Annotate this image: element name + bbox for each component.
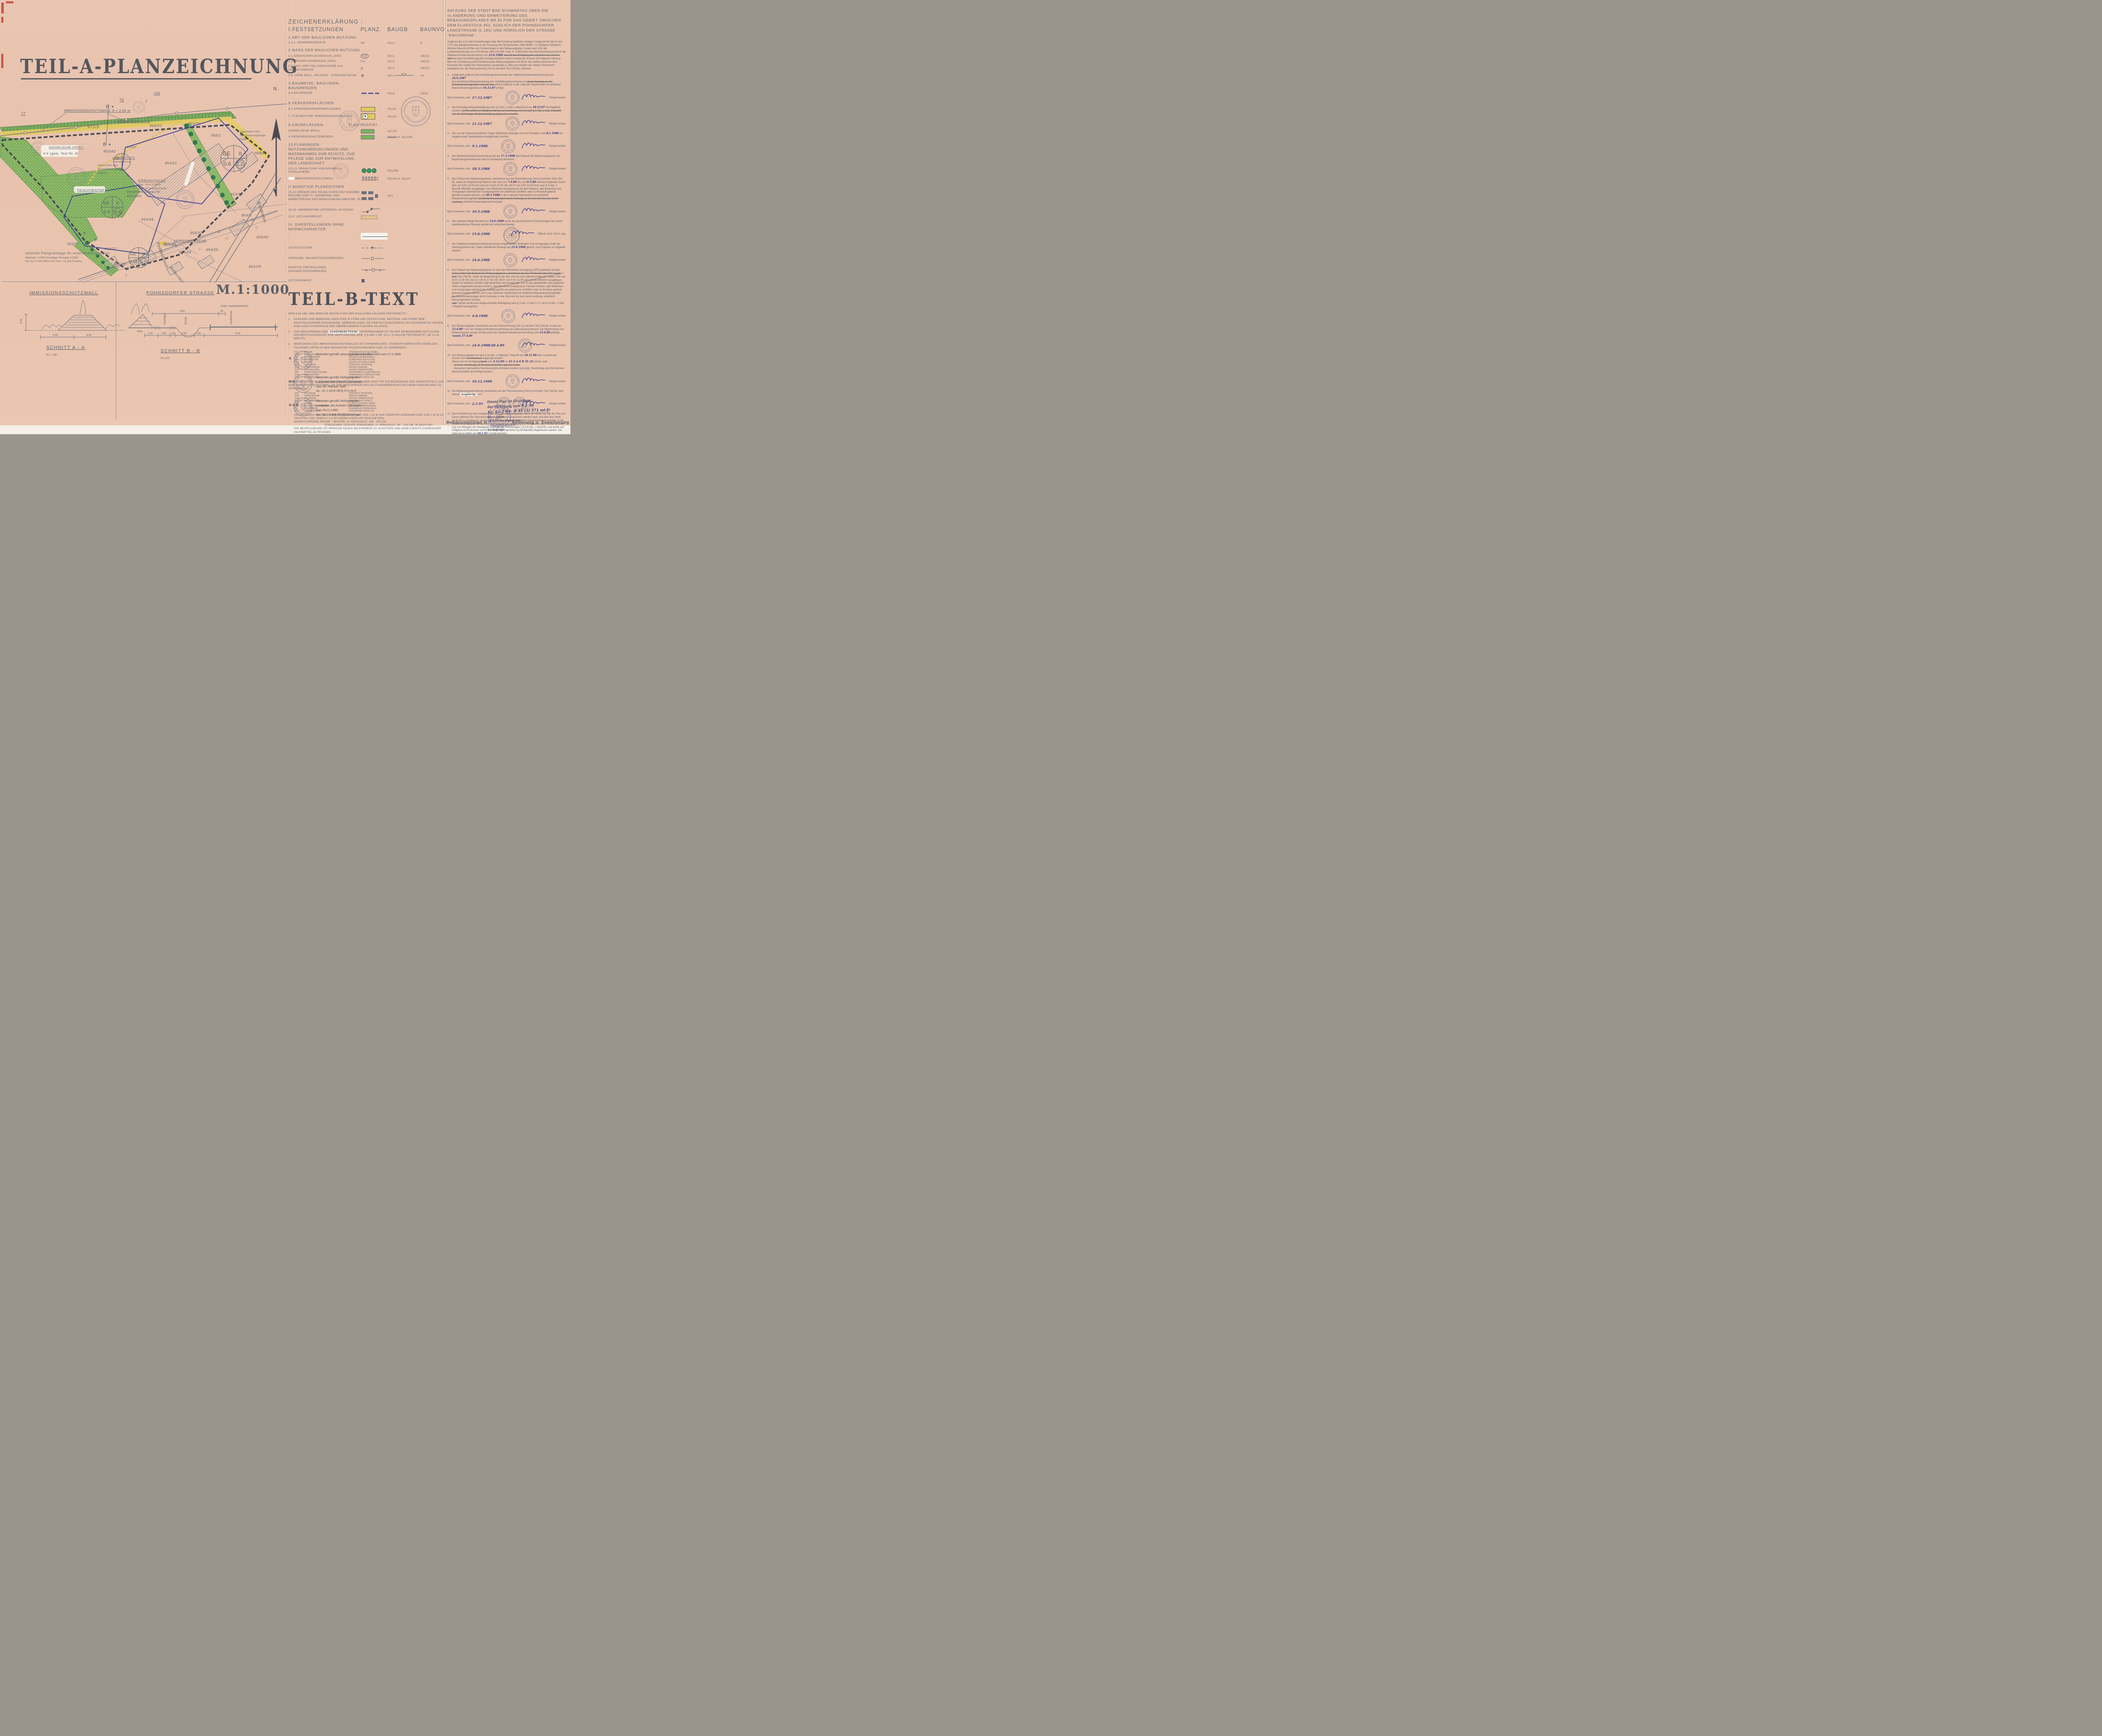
legend-symbol (361, 129, 388, 134)
handwritten-date: 9.2.90 (521, 404, 534, 409)
city-stamp: STADT BAD SCHWARTAU KREIS OSTHOLSTEIN (505, 90, 520, 107)
signer-title: Bürgermeister (549, 344, 566, 347)
satzung-title: SATZUNG DER STADT BAD SCHWARTAU ÜBER DIE… (447, 8, 566, 38)
star-marker: ✳ (288, 356, 292, 361)
legend-label: 13.2.2. ERHALTUNG VON BÄUMEN U. STRÄUCHE… (288, 167, 361, 174)
svg-text:0,8: 0,8 (115, 210, 121, 214)
legend-section-heading: II SONSTIGE PLANZEICHEN (288, 185, 445, 189)
item-text: GARAGEN UND NEBENANL AGEN SIND IN FORM U… (294, 318, 445, 328)
dim-label: .50 (220, 310, 224, 313)
map-label: VERKEHRSFLÄCHE (174, 239, 206, 243)
signer-title: Bürgermeister (549, 96, 566, 99)
legend-row: 13.2.2. ERHALTUNG VON BÄUMEN U. STRÄUCHE… (288, 167, 445, 174)
amendment-note: ✳✳ STADT BAD SCHWARTAU KREIS OSTHOLSTEIN… (288, 375, 444, 393)
red-edge-mark (1, 54, 3, 68)
red-edge-mark (6, 1, 13, 3)
svg-text:⨯: ⨯ (365, 268, 368, 272)
map-label: 954/3 (241, 213, 251, 217)
legend-rows: 1.ART DER BAULICHEN NUTZUNG1.3.1. GEWERB… (288, 35, 445, 283)
dim-label: WALL (137, 330, 143, 333)
legend-baugb-ref: 9(1)1 (388, 42, 420, 45)
legend-baugb-ref: 9(1)1 (388, 55, 420, 58)
svg-text:STADT BAD SCHWARTAU: STADT BAD SCHWARTAU (293, 397, 312, 409)
satzung-item-4: 4.Die Stadtverordnetenversammlung hat am… (447, 155, 566, 161)
map-label: 953/44 (141, 217, 153, 222)
plant-note-4: DIE NEUPFLANZUNG IST WIRKSAM GEGEN WILDV… (294, 427, 445, 434)
map-label: GRÜNFLÄCHE (PRIV.) (49, 146, 83, 149)
handwritten-date: 10.12.1990 (472, 380, 492, 383)
city-stamp: STADT BAD SCHWARTAU KREIS OSTHOLSTEIN (400, 96, 431, 129)
svg-text:0,4: 0,4 (103, 209, 110, 214)
legend-label: 15.5. LEITUNGSRECHT (288, 215, 361, 219)
red-edge-mark (1, 17, 3, 23)
svg-text:1.00: 1.00 (170, 332, 175, 335)
map-label: 952/7 (67, 242, 77, 246)
city-stamp: STADT BAD SCHWARTAU KREIS OSTHOLSTEIN (333, 163, 349, 181)
amendment-text: Geändert gemäß Verfügung desLandrates de… (316, 399, 444, 417)
legend-label: 6.VERKEHRSFLÄCHEN (288, 101, 361, 106)
legend-row: GRÜNFLÄCHE (PRIV.)9(1)15 (288, 129, 445, 134)
svg-text:1,1: 1,1 (141, 260, 146, 264)
map-label: LAGERPLATZ (113, 156, 135, 160)
legend-row: 15.5. LEITUNGSRECHT (288, 215, 445, 219)
svg-text:⨯: ⨯ (378, 268, 382, 272)
svg-text:GE: GE (130, 252, 137, 256)
signature-block: Bad Schwartau, den17.12.1987 STADT BAD S… (447, 92, 566, 103)
signer-title: Bürgermeister (549, 210, 566, 213)
city-stamp: STADT BAD SCHWARTAU KREIS OSTHOLSTEIN (503, 204, 518, 221)
svg-text:II: II (116, 201, 119, 206)
legend-label: 2.1.GESCHOSSFLÄCHENZAHL (GFZ) (288, 55, 361, 58)
svg-text:STADT BAD SCHWARTAU: STADT BAD SCHWARTAU (505, 374, 519, 383)
svg-text:0,6: 0,6 (223, 161, 231, 167)
map-label: B (106, 104, 109, 109)
map-label: 954/32 (190, 231, 202, 235)
city-stamp: STADT BAD SCHWARTAU KREIS OSTHOLSTEIN (503, 162, 518, 178)
ge-area-symbol: GEII0,40,8 (101, 196, 123, 218)
map-label: Stromversorgungs- (240, 134, 267, 137)
svg-text:II: II (143, 252, 145, 256)
dim-label: 2.00 (20, 319, 23, 324)
legend-subheading: I.FESTSETZUNGEN (288, 26, 361, 32)
city-stamp: STADT BAD SCHWARTAU KREIS OSTHOLSTEIN (501, 139, 515, 156)
map-label: trägers (98, 171, 108, 174)
map-label: BECKEN (127, 194, 141, 198)
signature-block: Bad Schwartau, den10.5.1988 STADT BAD SC… (447, 206, 566, 217)
signature (521, 206, 546, 217)
legend-symbol (361, 107, 388, 112)
legend-symbol (361, 245, 388, 251)
svg-text:STADT BAD SCHWARTAU: STADT BAD SCHWARTAU (339, 110, 359, 122)
map-label: VERKEHRSFLÄCHE (118, 119, 151, 123)
legend-row: 2.5.GRUNDFLÄCHENZAHL (GRZ)0,49(1)116(2)2 (288, 60, 445, 63)
plan-basis-line: Maßstab 1:1000 Grundlage Flurkarte 1:200… (25, 256, 110, 259)
signer-title: Bürgermeister (549, 380, 566, 383)
legend-symbol: GE (361, 42, 388, 45)
item-number: 1. (288, 318, 294, 328)
map-label: KNICK (126, 146, 136, 149)
legend-symbol (361, 207, 388, 214)
map-label: N (273, 86, 277, 92)
item-text: BEGRÜNUNG DES IMMISSIONSSCHUTZWALLES MIT… (294, 343, 445, 349)
legend-row: IMMISSIONSSCHUTZWALL9(1)24 m. 9(1)17 (288, 176, 445, 182)
map-label: über Strassenniveau (138, 187, 167, 190)
legend-baugb-ref: 9(1)16 m. 9(1)25b (388, 136, 420, 139)
legend-symbol (361, 256, 388, 261)
legend-label: 2.MASS DER BAULICHEN NUTZUNG (288, 48, 361, 53)
map-label: ✳✳ (gem. Text Nr. 4) (43, 152, 79, 156)
svg-text:STADT BAD SCHWARTAU: STADT BAD SCHWARTAU (400, 96, 429, 114)
red-edge-mark (1, 3, 4, 13)
map-label: zugunsten des (98, 164, 118, 167)
map-label: B (103, 142, 106, 147)
svg-text:2.00: 2.00 (161, 332, 166, 335)
svg-text:3.00: 3.00 (182, 332, 187, 335)
legend-baunvo-ref: 16(2)2 (420, 60, 445, 63)
signature-block: Bad Schwartau, den4.8.1988 STADT BAD SCH… (447, 311, 566, 322)
map-label: 955/1 (211, 133, 221, 137)
legend-label: 15.13. ABGRENZUNG UNTERSCH. NUTZUNG (288, 208, 361, 212)
dim-label: RADWEG (164, 313, 166, 325)
map-label: 954/21 (165, 161, 177, 165)
legend-label: 110 KV-LEITUNG (288, 246, 361, 250)
legend-section-heading: III. DARSTELLUNGEN OHNE NORMCHARAKTER (288, 222, 445, 232)
map-label: FEUCHTBIOTOP (77, 188, 105, 192)
schnitt-a-scale: M.1 : 100 (46, 354, 57, 356)
map-label: Stromversorgungs- (98, 168, 124, 171)
legend-baugb-ref: 9(1)1 (388, 60, 420, 63)
legend-section-heading: 3.BAUWEISE, BAULINIEN, BAUGRENZEN (288, 81, 445, 90)
satzung-items: 1.Aufgestellt aufgrund des Aufstellungsb… (447, 74, 566, 434)
legend-label: VORHAND. GRUNDSTÜCKSGRENZEN (288, 257, 361, 261)
amendment-text: Geändert gemäß satzungsändernden Beschlu… (316, 352, 444, 357)
svg-text:1.50: 1.50 (196, 332, 201, 335)
part-b-item-2: 2. ZUR ABSCHIRMUNG DER GEWERBEBETRIEBE U… (288, 330, 445, 340)
satzung-item-10: 10.Der Bebauungsplan ist nach § 11 Abs. … (447, 354, 566, 374)
satzung-column: SATZUNG DER STADT BAD SCHWARTAU ÜBER DIE… (447, 8, 566, 434)
legend-label: 13.PLANUNGEN, NUTZUNGSREGELUNGEN UND MAS… (288, 142, 361, 166)
legend-baugb-ref: 9(1)25b (388, 169, 420, 172)
legend-row: 2.1.GESCHOSSFLÄCHENZAHL (GFZ)0,89(1)116(… (288, 54, 445, 58)
svg-text:STADT BAD SCHWARTAU: STADT BAD SCHWARTAU (503, 162, 517, 170)
legend-baunvo-ref: 23(3) (420, 92, 445, 95)
legend-row: 1.3.1. GEWERBEGEBIETEGE9(1)18 (288, 41, 445, 45)
map-label: 953/26 (114, 262, 126, 266)
legend-symbol (361, 92, 388, 95)
legend-label: 1.ART DER BAULICHEN NUTZUNG (288, 35, 361, 40)
section-heading-left: IMMISSIONSSCHUTZWALL (29, 290, 98, 295)
map-label: 953/27 (104, 247, 116, 251)
dim-label: 6.00 (87, 334, 92, 337)
part-a-title: TEIL-A-PLANZEICHNUNG (20, 55, 298, 78)
legend-row: 3.4.BAUGRENZE9(1)223(3) (288, 92, 445, 95)
signature (521, 164, 546, 175)
map-label: 956/42 (256, 235, 269, 239)
map-label: 226 (153, 92, 160, 95)
dim-label: 4.00 (53, 334, 58, 337)
plan-basis-line: Dipl. Ing. W. Holst Öffentl. best. Verm.… (25, 260, 110, 263)
schnitt-b-scale: M 1:100 (161, 357, 170, 360)
satzung-item-9: 9.Der Bebauungsplan, bestehend aus der P… (447, 325, 566, 338)
legend-symbol (361, 190, 388, 201)
part-b-item-3: 3. BEGRÜNUNG DES IMMISSIONSSCHUTZWALLES … (288, 343, 445, 349)
map-label: 954/34 (188, 121, 201, 126)
amendment-text: Geändert gemäß Verfügung desLandrates de… (316, 375, 444, 393)
map-label: 76 (119, 98, 124, 102)
map-label: 953/30 (163, 242, 175, 246)
signature-block: Bad Schwartau, den10.12.1990 STADT BAD S… (447, 376, 566, 387)
signature (521, 92, 546, 103)
signature (521, 340, 546, 351)
handwritten-date: 10.5.1988 (472, 210, 490, 214)
svg-text:STADT BAD SCHWARTAU: STADT BAD SCHWARTAU (488, 404, 510, 418)
map-label: zugunsten des (240, 130, 260, 133)
signature (521, 141, 546, 152)
legend-row: 110 KV-LEITUNG (288, 245, 445, 251)
satzung-intro: Aufgrund des § 10 (bei Festsetzungen übe… (447, 40, 566, 70)
svg-text:STADT BAD SCHWARTAU: STADT BAD SCHWARTAU (501, 139, 515, 148)
map-label: Knickrehm (256, 201, 267, 224)
handwritten-date: 24.6.1988/28.4.89 (472, 343, 504, 347)
legend-row: 2.8. HÖHE BAUL. ANLAGEN : STREUGUTSILOS⊗… (288, 74, 445, 78)
legend-symbol: ⊗ (361, 74, 388, 78)
plan-basis-line: amtliche Plangrundlage für einen Bebauun… (25, 251, 110, 255)
legend-label: 3.BAUWEISE, BAULINIEN, BAUGRENZEN (288, 81, 361, 90)
legend-symbol: 0,4 (361, 60, 388, 63)
col-baunvo: BAUNVO (420, 26, 445, 32)
legend-label: 1.3.1. GEWERBEGEBIETE (288, 41, 361, 45)
map-label: REGENRÜCKHALTE- (127, 190, 161, 194)
schnitt-b-label: SCHNITT B - B (161, 348, 200, 354)
signer-title: Bürgermeister (549, 167, 566, 170)
svg-text:0,55: 0,55 (129, 260, 138, 264)
legend-baugb-ref: 9(1)24 m. 9(1)17 (388, 177, 420, 180)
city-stamp: STADT BAD SCHWARTAU KREIS OSTHOLSTEIN (293, 397, 313, 419)
city-stamp: STADT BAD SCHWARTAU KREIS OSTHOLSTEIN (501, 309, 515, 325)
legend-label: KÜNFTIG FORTFALLENDE GRUNDSTÜCKSGRENZEN (288, 266, 361, 273)
legend-label: III. DARSTELLUNGEN OHNE NORMCHARAKTER (288, 222, 361, 232)
signer-title: Bürgermeister (549, 259, 566, 261)
signature-block: Bad Schwartau, den24.6.1988/28.4.89 STAD… (447, 340, 566, 351)
signature (521, 118, 546, 129)
legend-symbol (361, 135, 388, 140)
legend-symbol: II (361, 66, 388, 71)
legend-row: LEITUNGSMAST (288, 279, 445, 283)
legend-row: 15.13. ABGRENZUNG UNTERSCH. NUTZUNG (288, 207, 445, 214)
item-number: 3. (288, 343, 294, 349)
city-stamp: STADT BAD SCHWARTAU KREIS OSTHOLSTEIN (293, 351, 313, 372)
legend-symbol (361, 215, 388, 219)
legend-symbol: 0,8 (361, 54, 388, 58)
city-stamp: STADT BAD SCHWARTAU KREIS OSTHOLSTEIN (505, 116, 520, 133)
legend-row: KÜNFTIG FORTFALLENDE GRUNDSTÜCKSGRENZEN⨯… (288, 266, 445, 273)
item-text: ZUR ABSCHIRMUNG DER GEWERBEBETRIEBE UNTE… (294, 330, 445, 340)
signer-title: Bürgermeister (549, 122, 566, 125)
bottom-title-band: Bebauungsplan N Änderung u. Erweiterung (446, 420, 569, 425)
legend-baunvo-ref: 14 (420, 74, 445, 77)
signature (521, 255, 546, 266)
signature-block: Bad Schwartau, den15.6.1988 Öffentl. bes… (447, 229, 566, 240)
legend-symbol (361, 176, 388, 182)
city-stamp: STADT BAD SCHWARTAU KREIS OSTHOLSTEIN (503, 253, 518, 269)
signature-block: Bad Schwartau, den24.6.1988 STADT BAD SC… (447, 255, 566, 266)
legend-label: II SONSTIGE PLANZEICHEN (288, 185, 361, 189)
map-label: 971/3 (87, 125, 99, 129)
map-label: ◄ (108, 142, 111, 146)
ge-area-symbol: GEII0,61,2 (221, 145, 247, 171)
map-label: 77 (21, 111, 26, 116)
satzung-item-11: 11.Die Bebauungsplansatzung, bestehend a… (447, 390, 566, 396)
svg-text:STADT BAD SCHWARTAU: STADT BAD SCHWARTAU (503, 204, 517, 213)
legend-section-heading: 2.MASS DER BAULICHEN NUTZUNG (288, 48, 445, 53)
legend-label: 3.4.BAUGRENZE (288, 92, 361, 95)
legend-row: 15.12.GRENZE DES RÄUMLICHEN GELTUNGSBE-R… (288, 190, 445, 201)
map-label: 851/29 (249, 264, 261, 269)
legend-symbol: ✳✳ (361, 233, 388, 240)
svg-text:STADT BAD SCHWARTAU: STADT BAD SCHWARTAU (505, 116, 519, 125)
dim-label: 9.50 (180, 310, 185, 313)
handwritten-date: 2.1.91 (472, 402, 483, 406)
city-stamp: STADT BAD SCHWARTAU KREIS OSTHOLSTEIN (505, 374, 520, 390)
svg-text:GE: GE (223, 150, 231, 156)
legend-label: 2.8. HÖHE BAUL. ANLAGEN : STREUGUTSILOS (288, 74, 361, 78)
svg-text:STADT BAD SCHWARTAU: STADT BAD SCHWARTAU (132, 101, 145, 108)
dim-label: FAHRBAHN (230, 311, 233, 325)
handwritten-date: 15.6.1988 (472, 232, 490, 236)
svg-text:6.00: 6.00 (235, 332, 240, 335)
svg-text:STADT BAD SCHWARTAU: STADT BAD SCHWARTAU (293, 351, 312, 362)
ge-area-symbol: GEII0,551,1 (129, 248, 149, 268)
map-label: 956/41 (255, 151, 267, 155)
handwritten-date: 17.12.1987 (472, 96, 492, 100)
signature (521, 311, 546, 322)
legend-baugb-ref: 9(1)2 (388, 92, 420, 95)
section-drawings: IMMISSIONSSCHUTZWALL POHNSDORFER STRASSE… (0, 281, 287, 426)
col-planz: PLANZ. (361, 26, 388, 32)
signature-block: Bad Schwartau, den11.12.1987 STADT BAD S… (447, 118, 566, 129)
legend-baunvo-ref: 16(2)3 (420, 67, 445, 70)
map-label: 954/33 (150, 124, 162, 128)
legend-label: 15.12.GRENZE DES RÄUMLICHEN GELTUNGSBE-R… (288, 191, 361, 202)
legend-baugb-ref: 9(1)15 (388, 130, 420, 133)
legend-label: 2.7.ZAHL DER VOLLGESCHOSSE ALS HÖCHSTGRE… (288, 65, 361, 72)
satzung-item-8: 8.Der Entwurf des Bebauungsplanes ist na… (447, 269, 566, 309)
svg-text:STADT BAD SCHWARTAU: STADT BAD SCHWARTAU (175, 190, 194, 201)
city-stamp: STADT BAD SCHWARTAU KREIS OSTHOLSTEIN (293, 374, 313, 395)
legend-row: ✳✳ (288, 233, 445, 240)
amendment-note: ✳ STADT BAD SCHWARTAU KREIS OSTHOLSTEIN … (288, 352, 444, 370)
dim-label: (VORH. FAHRBAHNKANTE) (220, 305, 248, 308)
plant-note-3: STRÄUCHER: LEICHTE STRÄUCHER, 1× VERSCHU… (325, 424, 445, 427)
legend-symbol (361, 113, 388, 120)
plan-basis-note: amtliche Plangrundlage für einen Bebauun… (25, 251, 110, 263)
legend-row: VORHAND. GRUNDSTÜCKSGRENZEN (288, 256, 445, 261)
legend-label: 2.5.GRUNDFLÄCHENZAHL (GRZ) (288, 60, 361, 63)
map-label: trägers (240, 138, 250, 141)
svg-text:STADT BAD SCHWARTAU: STADT BAD SCHWARTAU (505, 90, 519, 99)
part-b-intro: GEM § 82 LBO 1983 WIRD DIE GESTALTUNG DE… (288, 312, 445, 316)
map-label: 953/43 (103, 149, 116, 153)
handwritten-date: 9.1.1988 (472, 144, 488, 148)
scanned-plan-sheet: TEIL-A-PLANZEICHNUNG M.1:1000 (0, 0, 570, 434)
satzung-item-7: 7.Die Stadtverordnetenversammlung hat di… (447, 243, 566, 253)
handwritten-date: 24.6.1988 (472, 258, 490, 262)
map-label: 953/34 (230, 192, 243, 196)
legend-heading: ZEICHENERKLÄRUNG : (288, 18, 445, 25)
satzung-item-2: 2.Die frühzeitige Bürgerbeteiligung nach… (447, 106, 566, 116)
map-label: 954/25 (206, 248, 218, 252)
handwritten-date: 11.12.1987 (472, 122, 492, 126)
signer-title: Bürgermeister (549, 145, 566, 148)
handwritten-date: 18.3.1988 (472, 167, 490, 171)
satzung-item-6: 6.Der katastermäßige Bestand am 14.6.198… (447, 220, 566, 227)
signature (510, 229, 535, 240)
svg-text:II: II (239, 150, 242, 156)
city-stamp: STADT BAD SCHWARTAU KREIS OSTHOLSTEIN (339, 110, 360, 133)
legend-label: ✳ REGENRÜCKHALTEBECKEN (288, 135, 361, 139)
legend-symbol (361, 279, 388, 283)
whiteout-blob (288, 177, 294, 180)
svg-text:STADT BAD SCHWARTAU: STADT BAD SCHWARTAU (333, 163, 348, 172)
item-number: 2. (288, 330, 294, 340)
map-label: 7 (145, 100, 148, 104)
map-label: STREUGUTSILOS (138, 179, 166, 182)
svg-text:2.00: 2.00 (148, 332, 153, 335)
legend-row: 2.7.ZAHL DER VOLLGESCHOSSE ALS HÖCHSTGRE… (288, 65, 445, 72)
band-right: Änderung u. Erweiterung (512, 420, 569, 425)
map-label: max. H=13,00 m (138, 183, 161, 186)
signature-block: Bad Schwartau, den9.1.1988 STADT BAD SCH… (447, 141, 566, 152)
band-left: Bebauungsplan N (446, 420, 487, 425)
satzung-item-3: 3.Die von der Planung berührten Träger ö… (447, 132, 566, 139)
handwritten-date: 4.8.1988 (472, 314, 488, 318)
legend-label: IMMISSIONSSCHUTZWALL (288, 177, 361, 181)
schnitt-a-drawing (24, 300, 126, 339)
legend-baugb-ref: 9(1)1 (388, 67, 420, 70)
legend-column-headers: I.FESTSETZUNGEN PLANZ. BAUGB BAUNVO (288, 26, 445, 32)
svg-text:STADT BAD SCHWARTAU: STADT BAD SCHWARTAU (501, 309, 515, 317)
legend-baunvo-ref: 8 (420, 42, 445, 45)
part-b-title: TEIL-B-TEXT (288, 289, 445, 309)
signer-title: Bürgermeister (549, 314, 566, 317)
schnitt-a-label: SCHNITT A - A (46, 345, 85, 350)
legend-symbol: ⨯⨯ (361, 267, 388, 272)
signer-title: Öffentl. best. Verm.-Ing. (538, 232, 566, 235)
svg-text:1,2: 1,2 (237, 161, 243, 167)
legend-section-heading: 1.ART DER BAULICHEN NUTZUNG (288, 35, 445, 40)
signature (521, 376, 546, 387)
part-b-item-1: 1. GARAGEN UND NEBENANL AGEN SIND IN FOR… (288, 318, 445, 328)
legend-section-heading: 13.PLANUNGEN, NUTZUNGSREGELUNGEN UND MAS… (288, 142, 445, 166)
map-label: IMMISSIONSSCHUTZWALL H = 2,00 m (64, 109, 131, 113)
satzung-item-1: 1.Aufgestellt aufgrund des Aufstellungsb… (447, 74, 566, 90)
dim-label: ENTW. (185, 317, 187, 325)
legend-baugb-ref: 9(7) (388, 195, 420, 198)
svg-text:STADT BAD SCHWARTAU: STADT BAD SCHWARTAU (293, 374, 312, 385)
amendment-note: ✳✳✳ STADT BAD SCHWARTAU KREIS OSTHOLSTEI… (288, 399, 444, 417)
section-heading-right: POHNSDORFER STRASSE (146, 290, 214, 295)
legend-label: LEITUNGSMAST (288, 279, 361, 283)
legend-baunvo-ref: 16(2)1 (420, 55, 445, 58)
city-stamp: STADT BAD SCHWARTAU KREIS OSTHOLSTEIN (488, 404, 511, 430)
svg-text:GE: GE (103, 201, 110, 206)
amendment-notes: ✳ STADT BAD SCHWARTAU KREIS OSTHOLSTEIN … (288, 352, 444, 422)
svg-text:STADT BAD SCHWARTAU: STADT BAD SCHWARTAU (66, 167, 86, 179)
signature-block: Bad Schwartau, den18.3.1988 STADT BAD SC… (447, 164, 566, 174)
legend-row: ✳ REGENRÜCKHALTEBECKEN9(1)16 m. 9(1)25b (288, 135, 445, 140)
satzung-item-5: 5.Der Entwurf des Bebauungsplanes, beste… (447, 177, 566, 204)
svg-text:STADT BAD SCHWARTAU: STADT BAD SCHWARTAU (503, 253, 517, 261)
